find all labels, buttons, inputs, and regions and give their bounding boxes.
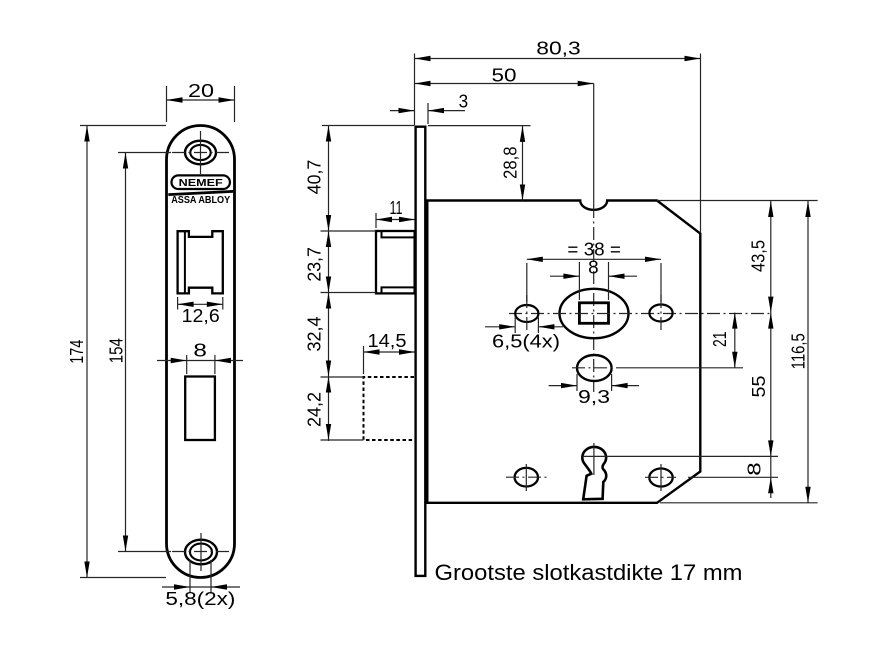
svg-text:3: 3 (459, 91, 469, 112)
svg-text:14,5: 14,5 (368, 330, 407, 351)
svg-text:21: 21 (709, 331, 730, 347)
svg-text:Grootste slotkastdikte 17 mm: Grootste slotkastdikte 17 mm (435, 560, 743, 585)
svg-text:8: 8 (744, 462, 765, 476)
svg-text:154: 154 (106, 338, 127, 363)
svg-text:23,7: 23,7 (303, 247, 324, 282)
svg-text:55: 55 (748, 376, 769, 398)
svg-text:80,3: 80,3 (536, 38, 581, 59)
svg-text:11: 11 (390, 197, 403, 218)
svg-text:40,7: 40,7 (303, 160, 324, 195)
svg-text:28,8: 28,8 (500, 146, 521, 179)
svg-text:8: 8 (588, 256, 599, 277)
svg-text:5,8(2x): 5,8(2x) (165, 588, 235, 609)
svg-text:8: 8 (193, 340, 207, 361)
svg-text:6,5(4x): 6,5(4x) (492, 331, 560, 352)
svg-text:43,5: 43,5 (747, 240, 768, 272)
svg-text:NEMEF: NEMEF (179, 178, 223, 189)
svg-text:24,2: 24,2 (303, 392, 324, 427)
svg-text:174: 174 (66, 340, 87, 364)
svg-text:ASSA ABLOY: ASSA ABLOY (171, 195, 230, 206)
svg-text:20: 20 (188, 80, 214, 101)
svg-text:12,6: 12,6 (182, 305, 220, 326)
svg-text:9,3: 9,3 (578, 386, 610, 407)
svg-text:116,5: 116,5 (788, 333, 809, 369)
svg-text:50: 50 (492, 64, 517, 85)
svg-text:32,4: 32,4 (303, 317, 324, 352)
